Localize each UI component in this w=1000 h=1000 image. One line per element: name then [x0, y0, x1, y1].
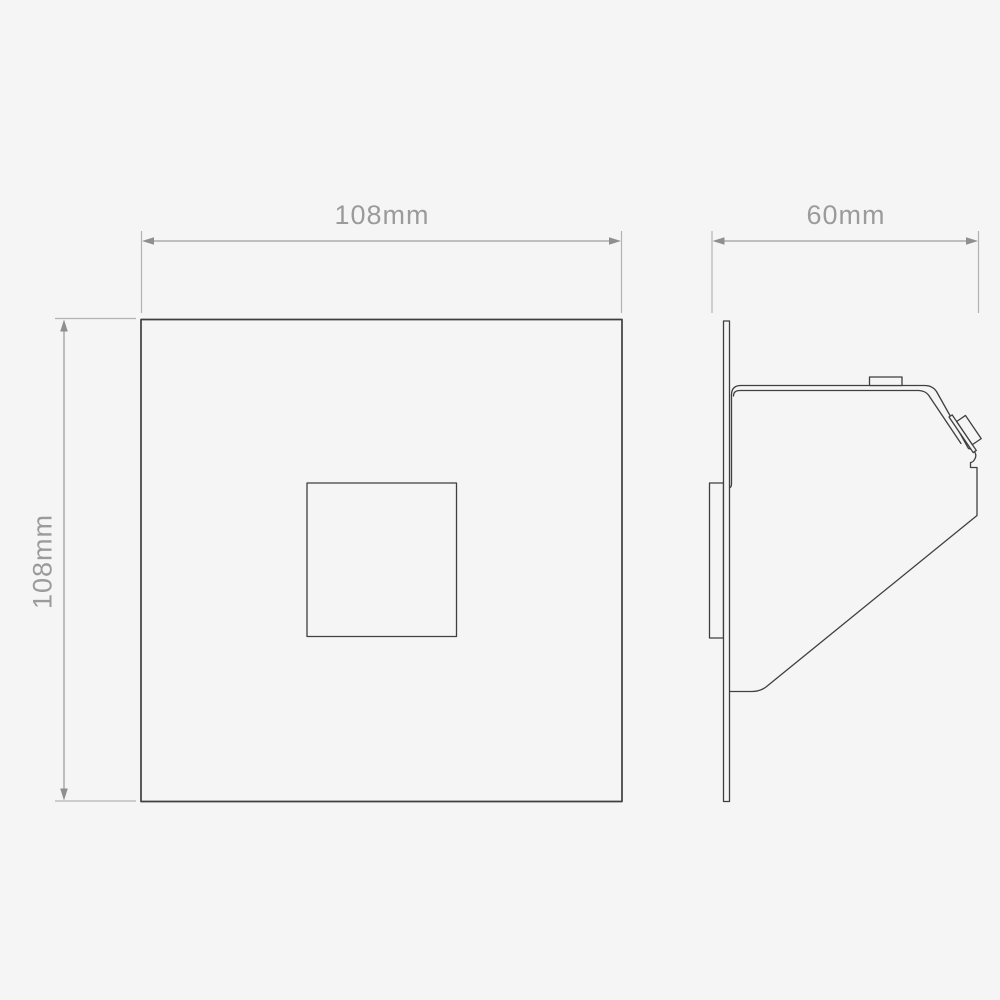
arrowhead-left-icon	[713, 237, 725, 245]
height-dimension	[55, 319, 136, 802]
arrowhead-down-icon	[60, 789, 68, 801]
technical-drawing	[0, 0, 1000, 1000]
arrowhead-left-icon	[142, 237, 154, 245]
arrowhead-right-icon	[609, 237, 621, 245]
arrowhead-up-icon	[60, 320, 68, 332]
side-body-inner-line	[734, 391, 962, 444]
arrowhead-right-icon	[966, 237, 978, 245]
side-window-edge	[710, 483, 724, 638]
drawing-canvas: 108mm 60mm 108mm	[0, 0, 1000, 1000]
front-view	[141, 320, 622, 802]
height-dimension-label: 108mm	[28, 462, 59, 662]
front-window-outline	[307, 483, 457, 637]
width-dimension	[142, 231, 622, 313]
side-view	[710, 321, 986, 802]
depth-dimension	[712, 231, 979, 313]
depth-dimension-label: 60mm	[746, 200, 946, 231]
side-body-outline	[730, 386, 978, 692]
mounting-tab	[870, 377, 903, 386]
width-dimension-label: 108mm	[282, 200, 482, 231]
front-faceplate-outline	[141, 320, 622, 802]
side-faceplate-edge	[724, 321, 730, 802]
